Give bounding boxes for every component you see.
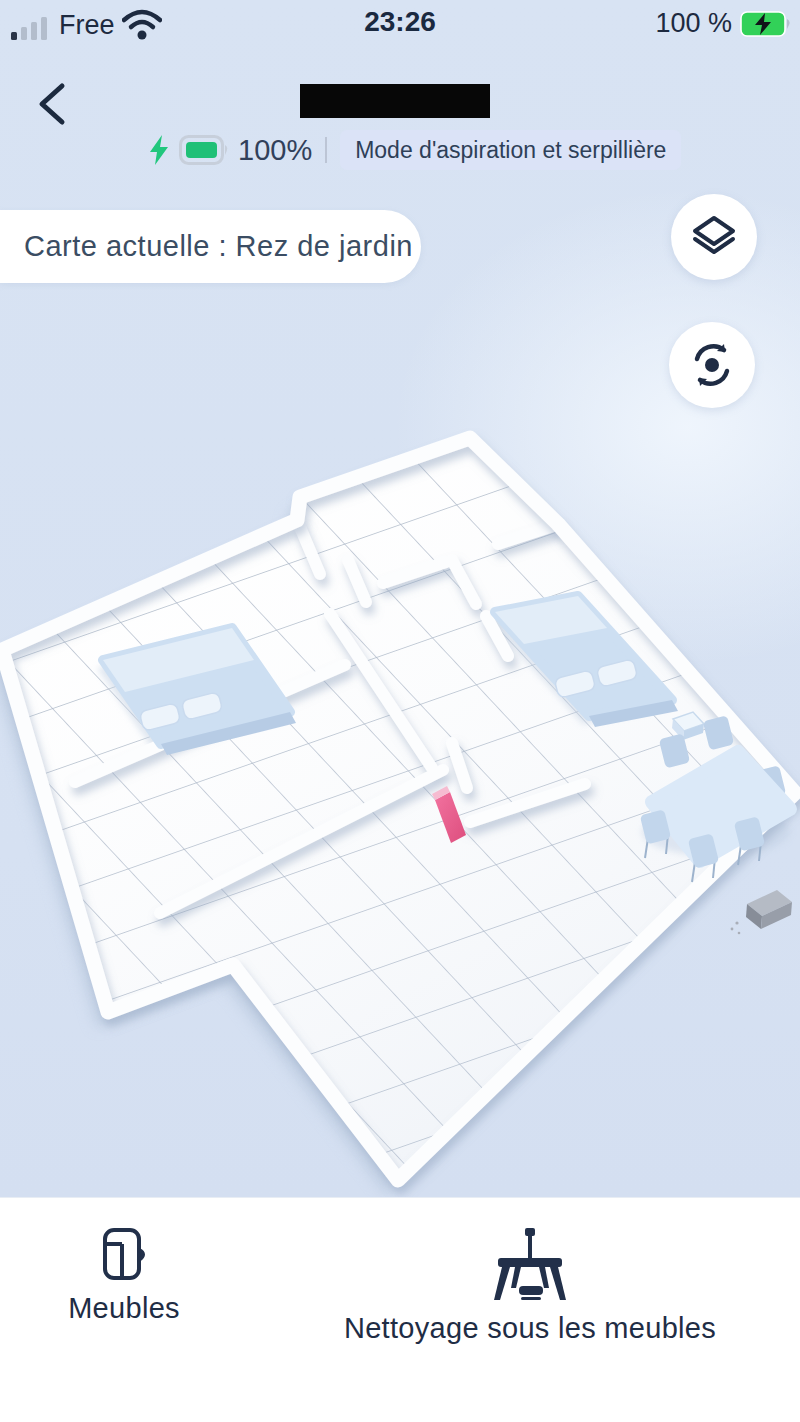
cleaning-mode-badge[interactable]: Mode d'aspiration et serpillière xyxy=(340,130,681,170)
charging-bolt-icon xyxy=(148,134,170,166)
battery-charging-icon xyxy=(740,9,792,39)
robot-status-row: 100% Mode d'aspiration et serpillière xyxy=(148,129,681,171)
robot-battery-icon xyxy=(179,134,229,166)
table-with-robot-icon xyxy=(488,1226,572,1302)
map-layers-button[interactable] xyxy=(671,194,757,280)
nav-item-nettoyage[interactable]: Nettoyage sous les meubles xyxy=(260,1226,800,1345)
charging-dock[interactable] xyxy=(731,890,792,934)
status-bar: Free 23:26 100 % xyxy=(0,0,800,52)
robot-battery-label: 100% xyxy=(238,134,312,167)
device-title-redacted xyxy=(300,84,490,118)
bottom-nav: Meubles Nettoyage sous les meubles xyxy=(0,1197,800,1422)
nav-label-nettoyage: Nettoyage sous les meubles xyxy=(260,1312,800,1345)
battery-percent-label: 100 % xyxy=(655,8,732,39)
nav-item-meubles[interactable]: Meubles xyxy=(28,1226,220,1325)
chevron-left-icon xyxy=(30,78,78,130)
current-map-label: Carte actuelle : Rez de jardin xyxy=(0,230,413,263)
nav-label-meubles: Meubles xyxy=(28,1292,220,1325)
current-map-pill[interactable]: Carte actuelle : Rez de jardin xyxy=(0,210,421,283)
layers-icon xyxy=(689,212,739,262)
floor-plan-3d[interactable] xyxy=(0,282,800,1197)
back-button[interactable] xyxy=(30,78,78,130)
furniture-cabinet-icon xyxy=(97,1226,151,1282)
divider xyxy=(325,137,327,163)
